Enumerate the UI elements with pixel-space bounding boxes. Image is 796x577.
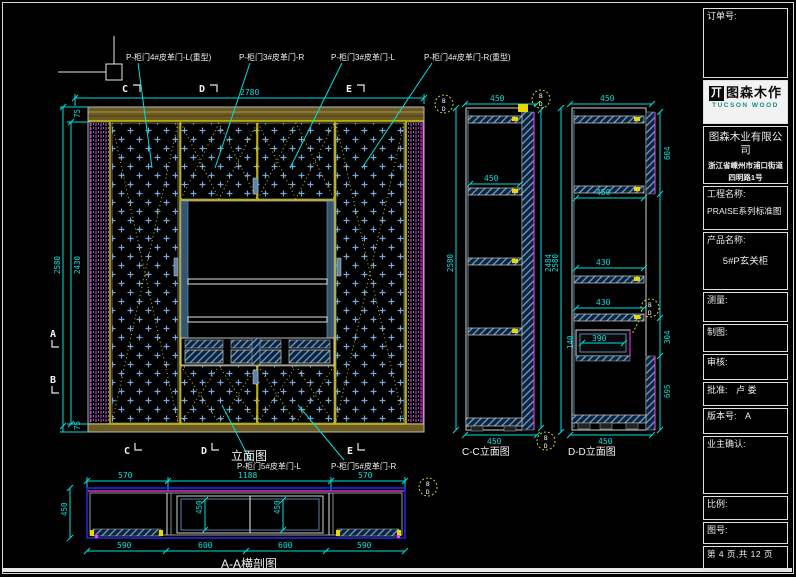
audit-label: 审核:	[707, 357, 784, 368]
door-label-6: P-柜门5#皮革门-R	[331, 461, 397, 471]
dd-dim-w3: 430	[596, 298, 611, 307]
product-label: 产品名称:	[707, 235, 784, 246]
drawer-unit	[181, 338, 334, 365]
dim-top-offset-text: 75	[73, 109, 82, 118]
approve-label: 批准:	[707, 385, 728, 395]
aa-dim-inner-r: 450	[273, 500, 282, 514]
logo-cell: 丌 图森木作 TUCSON WOOD	[703, 80, 788, 124]
cad-sheet: 2780 2580 2430 75 75 C D E C D E	[0, 0, 796, 577]
callout-letter-top: B	[426, 481, 430, 488]
cc-dim-top: 450	[490, 94, 505, 103]
measure-cell: 测量:	[703, 292, 788, 322]
dd-dim-top: 450	[600, 94, 615, 103]
page-info-cell: 第 4 页,共 12 页	[703, 546, 788, 571]
aa-dim-570a: 570	[118, 471, 133, 480]
dim-height-inner-text: 2430	[73, 255, 82, 274]
aa-dim-inner-l: 450	[195, 500, 204, 514]
aa-dim-600b: 600	[278, 541, 293, 550]
measure-label: 测量:	[707, 295, 784, 306]
callout-letter-bottom: D	[539, 101, 543, 108]
company-address-1: 浙江省嵊州市浦口街道	[708, 161, 783, 170]
cc-title: C-C立面图	[462, 445, 510, 458]
marker-d-top: D	[199, 84, 205, 95]
company-cell: 图森木业有限公司 浙江省嵊州市浦口街道 四明路1号	[703, 126, 788, 184]
owner-confirm-label: 业主确认:	[707, 439, 784, 450]
logo-subtitle: TUCSON WOOD	[707, 102, 784, 110]
company-address-2: 四明路1号	[728, 173, 762, 182]
dd-dim-w2: 430	[596, 258, 611, 267]
approve-value: 卢 娄	[736, 385, 757, 395]
owner-confirm-cell: 业主确认:	[703, 436, 788, 494]
aa-dim-left: 450	[60, 502, 69, 516]
callout-letter-bottom: D	[442, 106, 446, 113]
figure-number-label: 图号:	[707, 525, 784, 536]
marker-b-left: B	[50, 375, 56, 386]
door-label-4: P-柜门4#皮革门-R(重型)	[424, 52, 511, 62]
elevation-title: 立面图	[231, 448, 267, 463]
dd-dim-w1: 450	[596, 188, 611, 197]
marker-c-bottom: C	[124, 446, 130, 457]
audit-cell: 审核:	[703, 354, 788, 380]
callout-letter-bottom: D	[544, 443, 548, 450]
approve-cell: 批准: 卢 娄	[703, 382, 788, 406]
marker-d-bottom: D	[201, 446, 207, 457]
page-info: 第 4 页,共 12 页	[707, 549, 773, 559]
section-cc-view: 450	[446, 94, 553, 458]
title-block: 订单号: 丌 图森木作 TUCSON WOOD 图森木业有限公司 浙江省嵊州市浦…	[701, 8, 791, 566]
cc-top-fitting	[518, 104, 528, 112]
callout-letter-top: B	[544, 435, 548, 442]
project-cell: 工程名称: PRAISE系列标准图	[703, 186, 788, 230]
aa-title: A-A横剖图	[221, 557, 277, 571]
aa-dim-590a: 590	[117, 541, 132, 550]
version-label: 版本号:	[707, 411, 737, 421]
cc-shelf-fittings	[512, 117, 518, 333]
project-value: PRAISE系列标准图	[707, 206, 784, 217]
marker-e-top: E	[346, 84, 352, 95]
dd-dim-r1: 604	[663, 146, 672, 160]
cc-body	[466, 104, 534, 431]
dd-title: D-D立面图	[568, 445, 616, 458]
crown-moulding	[88, 107, 424, 121]
door-label-3: P-柜门3#皮革门-L	[331, 52, 396, 62]
dd-dim-bottom: 450	[598, 437, 613, 446]
dim-height-text: 2580	[53, 255, 62, 274]
dim-width-text: 2780	[240, 88, 259, 97]
fluted-panel-left	[90, 122, 110, 424]
niche-shelf-2	[188, 317, 327, 322]
marker-c-top: C	[122, 84, 128, 95]
callout-letter-top: B	[442, 98, 446, 105]
tucson-logo-icon: 丌	[709, 86, 724, 101]
dd-base	[572, 415, 646, 423]
draft-cell: 制图:	[703, 324, 788, 352]
dd-dim-left: 2580	[551, 253, 560, 272]
dd-dim-drawer-h: 140	[566, 335, 575, 349]
dd-dim-r2: 304	[663, 330, 672, 344]
plinth	[88, 424, 424, 432]
door-label-2: P-柜门3#皮革门-R	[239, 52, 305, 62]
product-value: 5#P玄关柜	[707, 256, 784, 268]
scale-cell: 比例:	[703, 496, 788, 520]
aa-dim-1188: 1188	[238, 471, 257, 480]
logo-name: 图森木作	[726, 85, 782, 101]
cc-dim-shelf: 450	[484, 174, 499, 183]
dim-bottom-offset-text: 75	[73, 421, 82, 430]
aa-dim-600a: 600	[198, 541, 213, 550]
draft-label: 制图:	[707, 327, 784, 338]
version-value: A	[745, 411, 751, 421]
aa-body	[87, 488, 405, 538]
company-name: 图森木业有限公司	[707, 131, 784, 157]
product-cell: 产品名称: 5#P玄关柜	[703, 232, 788, 290]
dd-dim-r3: 695	[663, 384, 672, 398]
callout-letter-top: B	[539, 93, 543, 100]
callout-letter-top: B	[648, 302, 652, 309]
version-cell: 版本号: A	[703, 408, 788, 434]
niche-shelf-1	[188, 279, 327, 284]
aa-dim-570b: 570	[358, 471, 373, 480]
datum-symbol	[58, 36, 122, 80]
callout-letter-bottom: D	[426, 489, 430, 496]
marker-e-bottom: E	[347, 446, 353, 457]
scale-label: 比例:	[707, 499, 784, 510]
cc-base	[466, 418, 522, 426]
order-number-cell: 订单号:	[703, 8, 788, 78]
fluted-panel-right	[405, 122, 423, 424]
aa-dim-590b: 590	[357, 541, 372, 550]
section-dd-view: 450	[551, 94, 672, 458]
tv-niche	[181, 201, 334, 338]
callout-letter-bottom: D	[648, 310, 652, 317]
door-label-1: P-柜门4#皮革门-L(重型)	[126, 52, 212, 62]
figure-number-cell: 图号:	[703, 522, 788, 544]
cc-dim-left: 2580	[446, 253, 455, 272]
cc-dim-bottom: 450	[487, 437, 502, 446]
project-label: 工程名称:	[707, 189, 784, 200]
section-aa-view: 570 1188 570	[60, 471, 408, 571]
order-number-label: 订单号:	[707, 11, 784, 22]
dd-shelf-fittings	[634, 117, 640, 319]
marker-a-left: A	[50, 329, 56, 340]
dd-dim-drawer: 390	[592, 334, 607, 343]
drawing-canvas: 2780 2580 2430 75 75 C D E C D E	[0, 0, 796, 577]
